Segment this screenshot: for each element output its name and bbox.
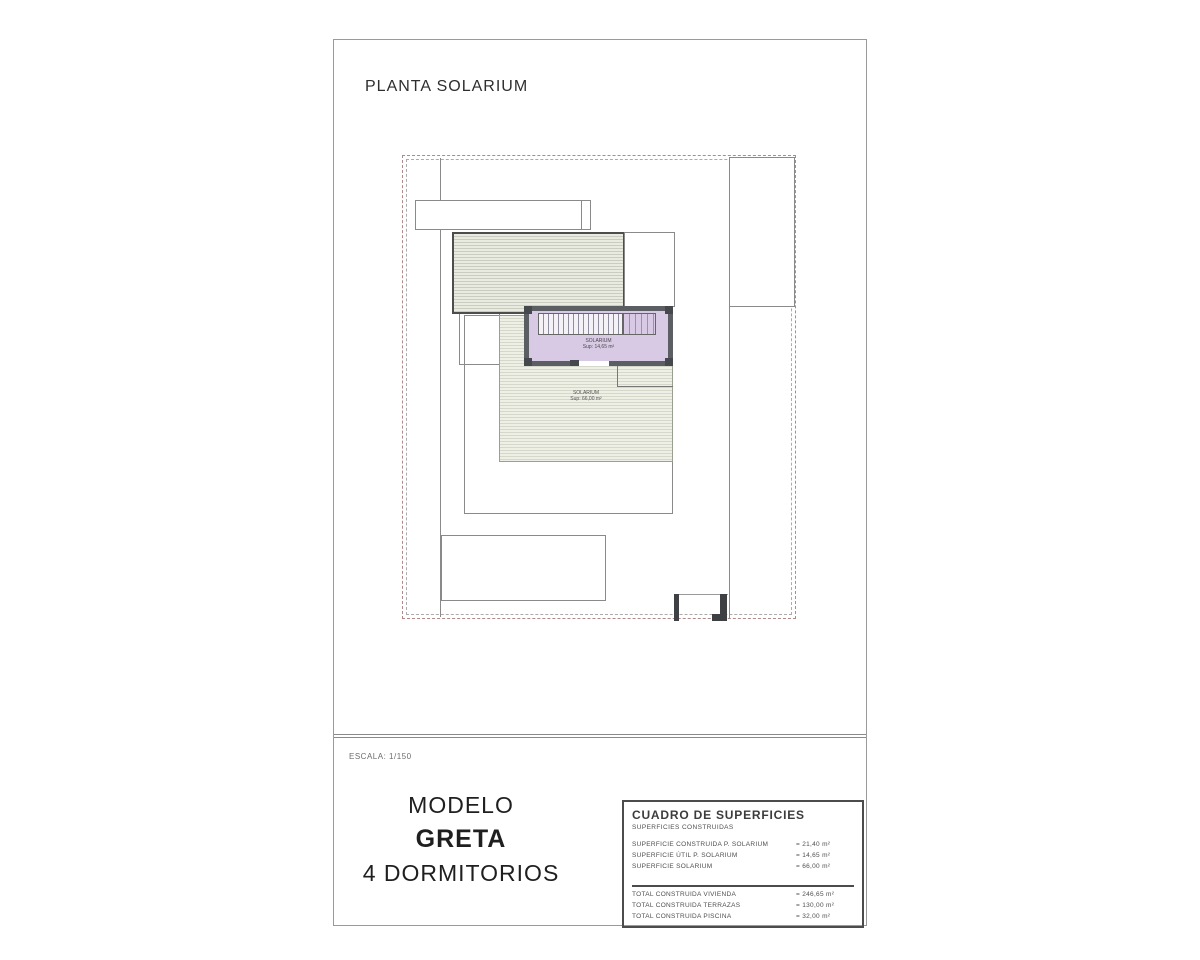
surfaces-table-title: CUADRO DE SUPERFICIES (632, 808, 854, 822)
staircase-treads (538, 313, 623, 335)
pool-outline (441, 535, 606, 601)
title-block-separator (334, 734, 866, 738)
table-spacer (632, 872, 854, 885)
surfaces-table-subtitle: SUPERFICIES CONSTRUIDAS (632, 824, 854, 831)
stair-room-label-area: Sup: 14,65 m² (529, 344, 668, 350)
totals-rows: TOTAL CONSTRUIDA VIVIENDA = 246,65 m² TO… (632, 889, 854, 922)
row-label: TOTAL CONSTRUIDA VIVIENDA (632, 889, 736, 900)
roof-side-outline (624, 232, 675, 307)
row-label: SUPERFICIE SOLARIUM (632, 861, 712, 872)
table-row: SUPERFICIE CONSTRUIDA P. SOLARIUM = 21,4… (632, 839, 854, 850)
row-label: SUPERFICIE ÚTIL P. SOLARIUM (632, 850, 738, 861)
totals-divider (632, 885, 854, 887)
terrace-label: SOLARIUM Sup: 66,00 m² (500, 390, 672, 402)
row-value: = 32,00 m² (796, 911, 854, 922)
row-value: = 21,40 m² (796, 839, 854, 850)
pergola-end-line (581, 201, 582, 229)
row-label: TOTAL CONSTRUIDA TERRAZAS (632, 900, 740, 911)
staircase-landing (623, 313, 656, 335)
surfaces-table: CUADRO DE SUPERFICIES SUPERFICIES CONSTR… (622, 800, 864, 928)
table-row: SUPERFICIE ÚTIL P. SOLARIUM = 14,65 m² (632, 850, 854, 861)
table-row: TOTAL CONSTRUIDA TERRAZAS = 130,00 m² (632, 900, 854, 911)
table-row: TOTAL CONSTRUIDA VIVIENDA = 246,65 m² (632, 889, 854, 900)
model-name: GRETA (356, 825, 566, 854)
stair-enclosure-room: SOLARIUM Sup: 14,65 m² (524, 306, 673, 366)
door-opening (579, 361, 609, 366)
wall-pillar-icon (665, 306, 673, 314)
stair-room-label: SOLARIUM Sup: 14,65 m² (529, 338, 668, 350)
model-title-block: MODELO GRETA 4 DORMITORIOS (356, 792, 566, 887)
row-value: = 130,00 m² (796, 900, 854, 911)
side-plot-outline (729, 157, 795, 307)
pergola-outline (415, 200, 591, 230)
table-row: SUPERFICIE SOLARIUM = 66,00 m² (632, 861, 854, 872)
roof-hatched-area (452, 232, 625, 314)
surfaces-rows: SUPERFICIE CONSTRUIDA P. SOLARIUM = 21,4… (632, 839, 854, 872)
row-label: SUPERFICIE CONSTRUIDA P. SOLARIUM (632, 839, 768, 850)
row-value: = 14,65 m² (796, 850, 854, 861)
gate-post-left (674, 594, 679, 621)
gate-post-foot (712, 614, 721, 621)
terrace-step-outline (617, 366, 673, 387)
model-word: MODELO (356, 792, 566, 819)
plan-title: PLANTA SOLARIUM (365, 78, 528, 96)
scale-label: ESCALA: 1/150 (349, 752, 412, 761)
gate-post-right (720, 594, 727, 621)
model-bedrooms: 4 DORMITORIOS (356, 860, 566, 887)
row-label: TOTAL CONSTRUIDA PISCINA (632, 911, 732, 922)
site-plan: SOLARIUM Sup: 66,00 m² SOLARIUM Sup: 14,… (402, 155, 796, 619)
wall-pillar-icon (524, 306, 532, 314)
plot-division-line-right (729, 307, 730, 619)
table-row: TOTAL CONSTRUIDA PISCINA = 32,00 m² (632, 911, 854, 922)
wall-pillar-icon (665, 358, 673, 366)
wall-pillar-icon (524, 358, 532, 366)
door-jamb (570, 360, 579, 366)
row-value: = 66,00 m² (796, 861, 854, 872)
terrace-label-area: Sup: 66,00 m² (500, 396, 672, 402)
row-value: = 246,65 m² (796, 889, 854, 900)
drawing-sheet: PLANTA SOLARIUM SOLARIUM Sup: 66,00 m² S… (333, 39, 867, 926)
